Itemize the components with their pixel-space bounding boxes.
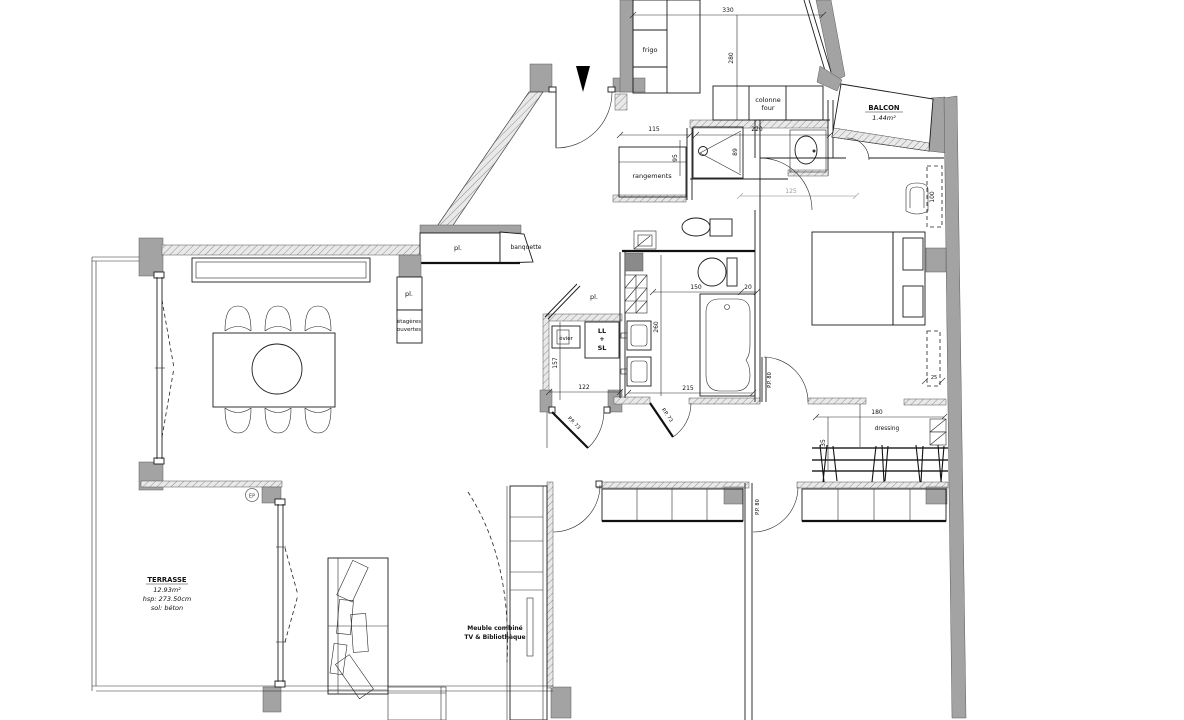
- bed: [812, 232, 893, 325]
- sink-label: évier: [559, 335, 574, 342]
- dim-125: 125: [785, 188, 797, 195]
- wardrobe-right-room: [802, 489, 946, 521]
- dim-89: 89: [732, 148, 739, 156]
- bath-toilet-bowl: [698, 258, 726, 286]
- dim-150: 150: [690, 284, 702, 291]
- tv-bookcase-unit: [468, 486, 547, 720]
- dim-100: 100: [929, 191, 936, 203]
- washer-label: LL: [598, 327, 606, 335]
- pillow: [903, 286, 923, 317]
- dim-115: 115: [648, 126, 660, 133]
- dim-220: 220: [751, 126, 763, 133]
- terrace-ceiling-height: hsp: 273.50cm: [143, 595, 192, 603]
- hanging-rail: [812, 448, 948, 471]
- door-label-pp80-a: P.P. 80: [767, 372, 773, 388]
- wardrobe-left-room: [602, 489, 743, 521]
- dim-260: 260: [653, 321, 660, 333]
- armchair: [906, 183, 928, 214]
- bath-toilet-tank: [727, 258, 737, 286]
- double-washbasin: [621, 321, 651, 386]
- hanging-clothes: [820, 445, 944, 482]
- bedroom: 100 25: [812, 166, 945, 386]
- sideboard: [192, 258, 370, 282]
- laundry-closet-label: pl.: [590, 293, 598, 301]
- dim-25: 25: [931, 375, 937, 381]
- wc: [682, 158, 812, 236]
- fridge-label: frigo: [643, 46, 658, 54]
- dim-280: 280: [728, 52, 735, 64]
- floor-plan-drawing: EP TERRASSE 12.93m² hsp: 273.50cm sol: b…: [0, 0, 1184, 720]
- dim-215: 215: [682, 385, 694, 392]
- plus-label: +: [599, 335, 604, 343]
- door-swing-room-left: [553, 485, 600, 532]
- dining-chair: [225, 306, 251, 331]
- dining-chair: [265, 408, 291, 433]
- oven-column-label-2: four: [761, 104, 774, 112]
- balcony-area: 1.44m²: [872, 114, 896, 122]
- living-window-west: [154, 272, 174, 464]
- door-label-pp80-b: P.P. 80: [755, 499, 761, 515]
- pillow: [903, 238, 923, 270]
- ep-label: EP: [249, 494, 255, 500]
- kitchen: frigo colonne four 330 280: [630, 0, 826, 120]
- tv-unit-label-2: TV & Bibliothèque: [464, 634, 525, 641]
- living-dining: Meuble combiné TV & Bibliothèque: [192, 258, 547, 720]
- dryer-label: SL: [598, 344, 607, 352]
- bed-headboard: [893, 232, 925, 325]
- balcony-title: BALCON: [868, 104, 900, 112]
- dressing-shelf: [930, 419, 946, 445]
- dim-95: 95: [672, 154, 679, 162]
- laundry: pl. évier LL + SL 157 122: [545, 284, 623, 400]
- dining-chair: [265, 306, 291, 331]
- living-window-south: [275, 499, 298, 687]
- balcony: BALCON 1.44m²: [832, 84, 933, 160]
- dim-330: 330: [722, 7, 734, 14]
- bath-shelf-niche: [625, 275, 647, 313]
- sofa: [328, 558, 446, 720]
- entry-door-swing: [556, 92, 612, 148]
- dining-chair: [305, 306, 331, 331]
- door-swing-pp73-b: [673, 403, 691, 437]
- oven-column-label-1: colonne: [755, 96, 781, 104]
- entrance-arrow: [576, 66, 590, 92]
- terrace-area: 12.93m²: [153, 586, 181, 594]
- open-shelves-label-1: étagères: [397, 318, 421, 325]
- door-swing-pp73-a: [588, 412, 604, 448]
- rangements-label: rangements: [632, 172, 672, 180]
- dim-180: 180: [871, 409, 883, 416]
- open-shelves-label-2: ouvertes: [397, 327, 421, 333]
- terrace-floor-finish: sol: béton: [151, 604, 183, 612]
- shower-drain: [699, 147, 708, 156]
- toilet-bowl: [682, 218, 710, 236]
- closet-pl-column-label: pl.: [405, 290, 413, 298]
- table-centerpiece: [252, 344, 302, 394]
- dim-122: 122: [578, 384, 590, 391]
- dim-35: 35: [820, 439, 827, 447]
- bottom-rooms: [602, 489, 946, 521]
- bathroom: 150 20 260 215: [621, 231, 760, 396]
- closet-pl-top-label: pl.: [454, 244, 462, 252]
- toilet-tank: [710, 219, 732, 236]
- hall-closets: pl. banquette pl. étagères ouvertes: [397, 225, 542, 343]
- dining-chair: [305, 408, 331, 433]
- dressing-label: dressing: [875, 426, 900, 432]
- banquette-label: banquette: [511, 244, 542, 251]
- dim-157: 157: [552, 357, 559, 369]
- dim-20: 20: [744, 284, 752, 291]
- floor-plan: EP TERRASSE 12.93m² hsp: 273.50cm sol: b…: [0, 0, 1184, 720]
- dressing: 180 dressing 35: [812, 409, 948, 482]
- hall-door-swing: [760, 158, 812, 210]
- terrace-title: TERRASSE: [147, 576, 186, 584]
- tv-unit-label-1: Meuble combiné: [467, 625, 522, 632]
- dining-chair: [225, 408, 251, 433]
